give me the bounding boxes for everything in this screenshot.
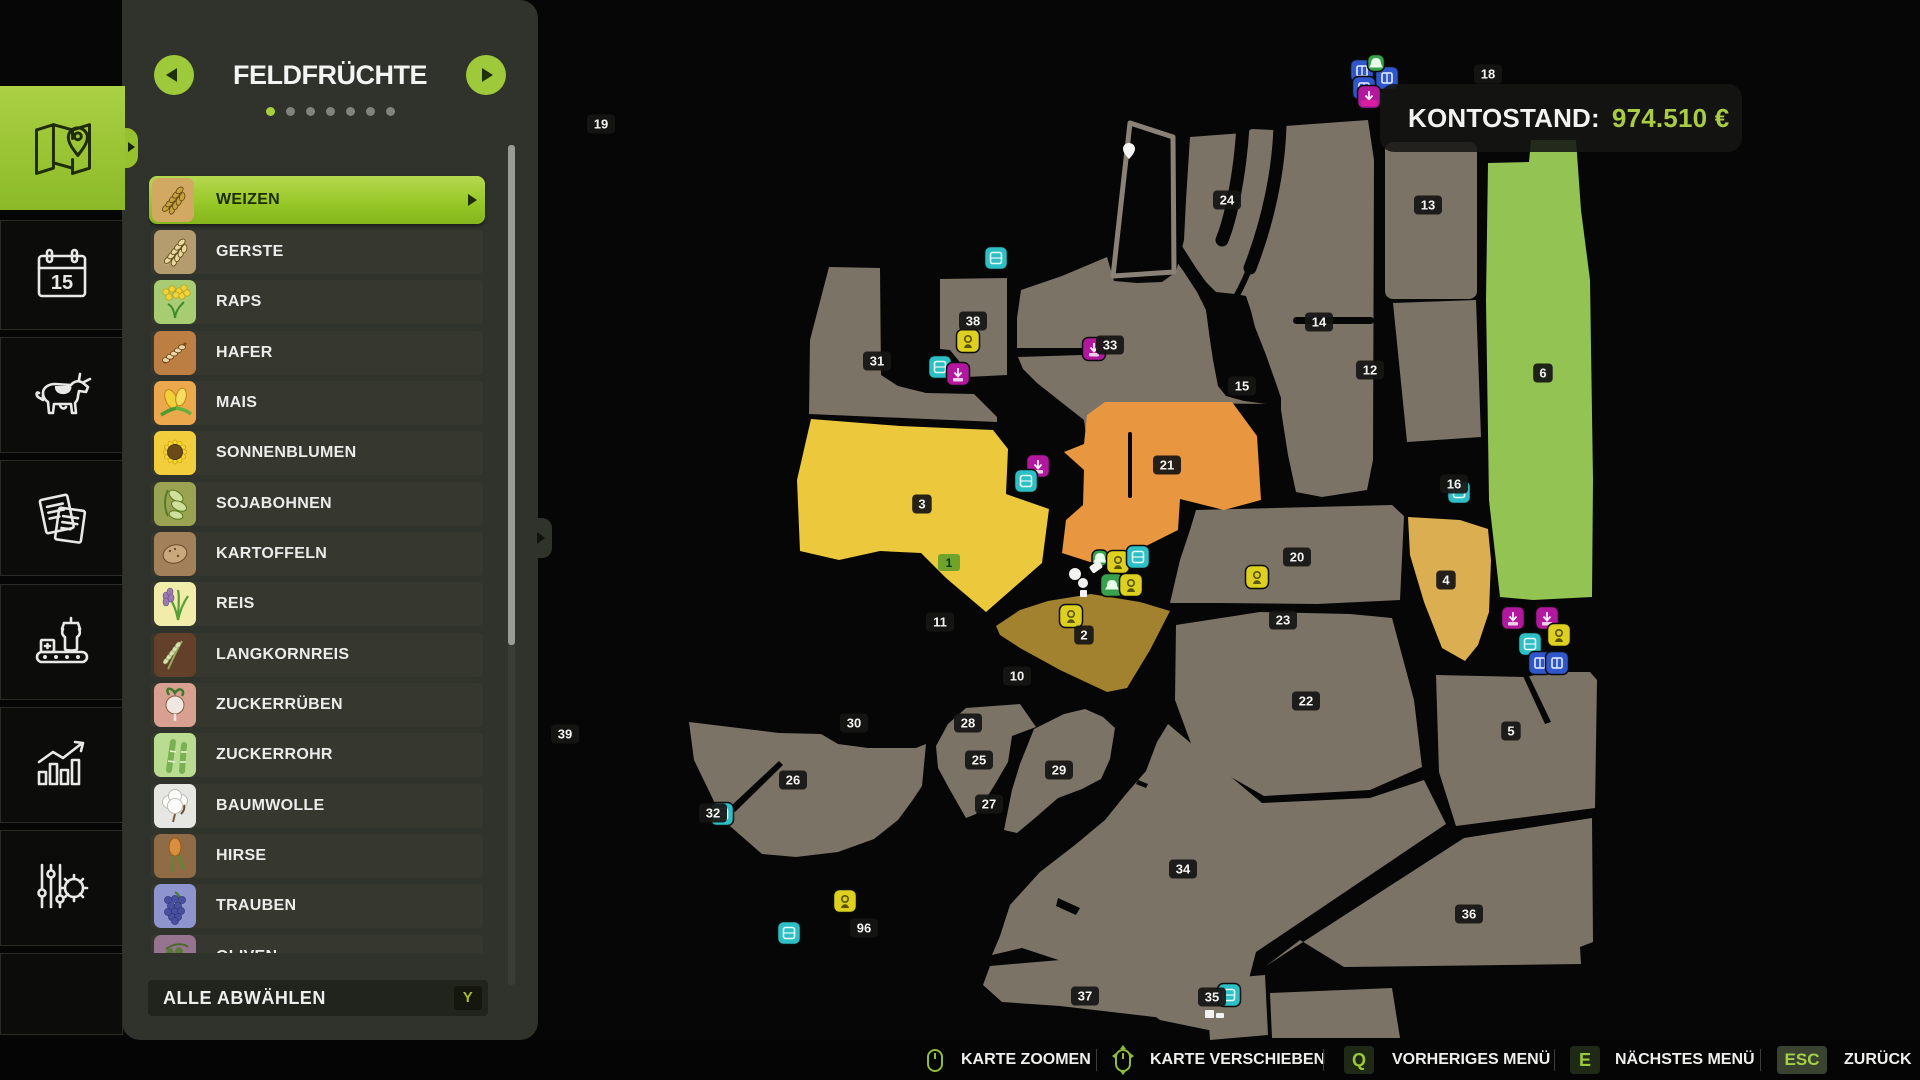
svg-text:10: 10 bbox=[1010, 669, 1024, 684]
svg-text:6: 6 bbox=[1539, 366, 1546, 381]
svg-text:3: 3 bbox=[918, 497, 925, 512]
svg-text:29: 29 bbox=[1052, 763, 1066, 778]
svg-text:14: 14 bbox=[1312, 315, 1327, 330]
svg-text:30: 30 bbox=[847, 716, 861, 731]
svg-text:2: 2 bbox=[1080, 628, 1087, 643]
svg-text:38: 38 bbox=[966, 314, 980, 329]
svg-text:18: 18 bbox=[1481, 67, 1495, 82]
svg-text:35: 35 bbox=[1205, 990, 1219, 1005]
svg-text:16: 16 bbox=[1447, 477, 1461, 492]
svg-text:24: 24 bbox=[1220, 193, 1235, 208]
svg-text:31: 31 bbox=[870, 354, 884, 369]
svg-text:19: 19 bbox=[594, 117, 608, 132]
svg-text:36: 36 bbox=[1462, 907, 1476, 922]
svg-text:4: 4 bbox=[1442, 573, 1450, 588]
svg-text:28: 28 bbox=[961, 716, 975, 731]
svg-text:11: 11 bbox=[933, 615, 947, 630]
svg-text:15: 15 bbox=[50, 272, 72, 294]
svg-text:1: 1 bbox=[946, 556, 953, 570]
svg-text:33: 33 bbox=[1103, 338, 1117, 353]
svg-text:37: 37 bbox=[1078, 989, 1092, 1004]
svg-text:13: 13 bbox=[1421, 198, 1435, 213]
svg-text:32: 32 bbox=[706, 806, 720, 821]
svg-text:23: 23 bbox=[1276, 613, 1290, 628]
svg-text:21: 21 bbox=[1160, 458, 1174, 473]
svg-text:25: 25 bbox=[972, 753, 986, 768]
svg-text:27: 27 bbox=[982, 797, 996, 812]
svg-text:12: 12 bbox=[1363, 363, 1377, 378]
svg-text:15: 15 bbox=[1235, 379, 1249, 394]
svg-text:22: 22 bbox=[1299, 694, 1313, 709]
svg-text:34: 34 bbox=[1176, 862, 1191, 877]
svg-text:39: 39 bbox=[558, 727, 572, 742]
svg-text:96: 96 bbox=[857, 921, 871, 936]
svg-text:5: 5 bbox=[1507, 724, 1514, 739]
svg-text:26: 26 bbox=[786, 773, 800, 788]
svg-text:20: 20 bbox=[1290, 550, 1304, 565]
